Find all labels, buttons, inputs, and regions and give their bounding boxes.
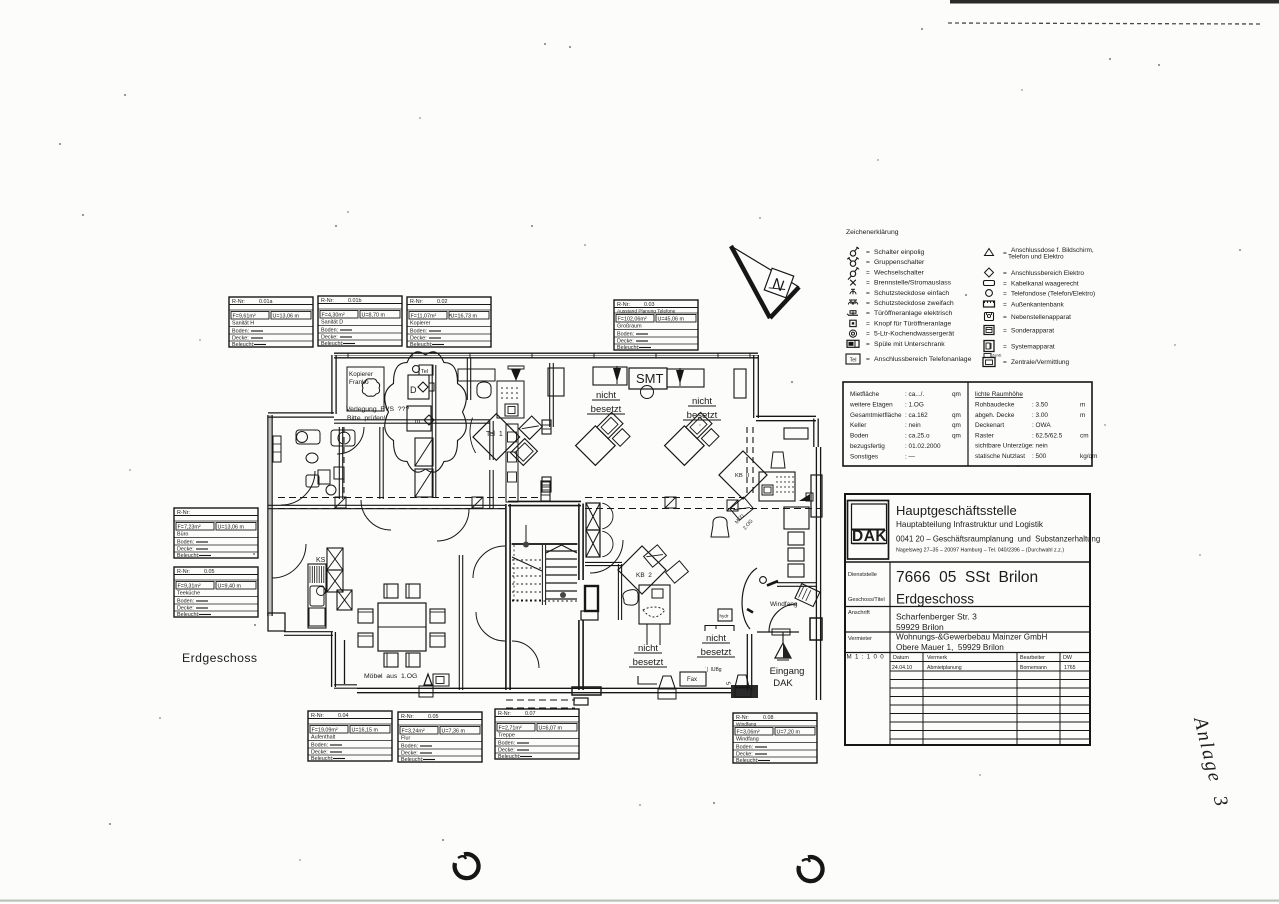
svg-text:Beleucht:: Beleucht: (410, 342, 432, 348)
svg-text:weitere Etagen: weitere Etagen (849, 401, 893, 408)
svg-text:Beleucht:: Beleucht: (617, 345, 639, 351)
svg-text:abgeh. Decke: abgeh. Decke (975, 412, 1015, 419)
svg-text:Keller: Keller (850, 422, 867, 429)
svg-text:besetzt: besetzt (701, 647, 732, 658)
svg-text:: 01.02.2000: : 01.02.2000 (905, 443, 941, 450)
svg-text:nicht: nicht (596, 390, 616, 401)
svg-text:qm: qm (952, 433, 961, 440)
svg-text:F=4,30m²: F=4,30m² (322, 313, 345, 319)
svg-text:F=11,07m²: F=11,07m² (411, 314, 437, 320)
svg-text:Datum: Datum (893, 655, 909, 661)
svg-text:bezugsfertig: bezugsfertig (850, 443, 885, 450)
svg-text:=: = (1003, 344, 1007, 351)
svg-text:Treppe: Treppe (498, 733, 515, 739)
svg-text:SMT: SMT (636, 371, 664, 386)
svg-text:Windfang: Windfang (736, 737, 759, 743)
svg-text:Vermieter: Vermieter (848, 636, 872, 642)
svg-text:Knopf für Türöffneranlage: Knopf für Türöffneranlage (874, 320, 951, 327)
svg-text:Wechselschalter: Wechselschalter (874, 269, 924, 276)
svg-text:Zentr.: Zentr. (992, 353, 1002, 358)
svg-text:: nein: : nein (1032, 443, 1048, 450)
svg-text:=: = (866, 290, 870, 297)
svg-text:F=19,09m²: F=19,09m² (312, 728, 338, 734)
svg-text:=: = (1003, 250, 1007, 257)
svg-text:Bitte prüfen!!: Bitte prüfen!! (347, 415, 388, 422)
svg-text:Bornemann: Bornemann (1020, 665, 1047, 671)
svg-text:nicht: nicht (706, 633, 726, 644)
svg-text:: 3.00: : 3.00 (1032, 412, 1048, 419)
svg-text:Obere Mauer 1, 59929 Brilon: Obere Mauer 1, 59929 Brilon (896, 643, 1004, 652)
svg-text:besetzt: besetzt (591, 404, 622, 415)
svg-text:Anschlussbereich Elektro: Anschlussbereich Elektro (1011, 270, 1084, 277)
svg-text:DAK: DAK (852, 528, 887, 545)
svg-text:Sanität D: Sanität D (321, 320, 343, 326)
svg-text:=: = (866, 249, 870, 256)
svg-text:=: = (1003, 270, 1007, 277)
svg-text:=: = (866, 320, 870, 327)
svg-text:Brennstelle/Stromauslass: Brennstelle/Stromauslass (874, 280, 952, 287)
svg-text:Deckenart: Deckenart (975, 422, 1004, 429)
svg-text:Wohnungs-&Gewerbebau Mainzer G: Wohnungs-&Gewerbebau Mainzer GmbH (896, 633, 1047, 642)
svg-text:U=45,06 m: U=45,06 m (658, 317, 685, 323)
svg-text:Aufenthalt: Aufenthalt (311, 735, 336, 741)
svg-text:Tel: Tel (849, 358, 856, 364)
svg-text:Türöffneranlage elektrisch: Türöffneranlage elektrisch (874, 310, 953, 317)
svg-text:Eingang: Eingang (770, 666, 805, 677)
svg-text:24.04.10: 24.04.10 (892, 665, 912, 671)
svg-text:0041 20 – Geschäftsraumplanung: 0041 20 – Geschäftsraumplanung und Subst… (896, 535, 1100, 544)
svg-text:F=9,61m²: F=9,61m² (233, 314, 256, 320)
svg-text:Hauptabteilung Infrastruktur u: Hauptabteilung Infrastruktur und Logisti… (896, 520, 1044, 529)
svg-text:KB 2: KB 2 (636, 572, 652, 579)
svg-text:=: = (1003, 302, 1007, 309)
svg-text:: 1.OG: : 1.OG (905, 401, 924, 408)
svg-text:: 3.50: : 3.50 (1032, 402, 1048, 409)
svg-text:m: m (1080, 412, 1085, 419)
svg-text:Beleucht:: Beleucht: (321, 341, 343, 347)
svg-text:=: = (866, 269, 870, 276)
svg-text:Möbel aus 1.OG: Möbel aus 1.OG (364, 673, 417, 680)
svg-text:DW: DW (1063, 655, 1073, 661)
svg-text:Kopierer: Kopierer (349, 371, 373, 378)
svg-text:Verlegung EVS ???: Verlegung EVS ??? (346, 406, 409, 413)
svg-text:: ca.162: : ca.162 (905, 412, 928, 419)
svg-text:=: = (866, 280, 870, 287)
svg-text:Kabelkanal waagerecht: Kabelkanal waagerecht (1011, 281, 1079, 288)
svg-text:qm: qm (952, 422, 961, 429)
svg-text:7666 05 SSt Brilon: 7666 05 SSt Brilon (896, 569, 1038, 586)
svg-text:lichte Raumhöhe: lichte Raumhöhe (975, 391, 1023, 398)
svg-text:=: = (866, 356, 870, 363)
svg-text:KS: KS (316, 557, 326, 564)
svg-text:E: E (413, 419, 420, 424)
svg-text:Dienststelle: Dienststelle (848, 572, 877, 578)
svg-text:Gesamtmietfläche: Gesamtmietfläche (850, 412, 902, 419)
svg-text:Beleucht:: Beleucht: (736, 758, 758, 764)
svg-text:Tel 1: Tel 1 (486, 431, 503, 438)
svg-text:Systemapparat: Systemapparat (1011, 344, 1055, 351)
svg-text:Schutzsteckdose zweifach: Schutzsteckdose zweifach (874, 300, 954, 307)
svg-text:U=16,73 m: U=16,73 m (451, 314, 478, 320)
svg-text:qm: qm (952, 412, 961, 419)
svg-text:M 1 : 1 0 0: M 1 : 1 0 0 (847, 654, 885, 661)
svg-text:Zeichenerklärung: Zeichenerklärung (846, 229, 899, 236)
svg-text:Büro: Büro (177, 532, 188, 538)
svg-text:Erdgeschoss: Erdgeschoss (182, 651, 258, 665)
svg-text:: OWA: : OWA (1032, 422, 1051, 429)
svg-text:Großraum: Großraum (617, 324, 642, 330)
svg-text:´| lUBg: ´| lUBg (705, 667, 722, 673)
svg-text:U=8,70 m: U=8,70 m (362, 313, 386, 319)
svg-text:U=6,07 m: U=6,07 m (539, 726, 563, 732)
svg-text:Beleucht:: Beleucht: (177, 612, 199, 618)
svg-text:Spüle mit Unterschrank: Spüle mit Unterschrank (874, 341, 945, 348)
svg-text:Boden: Boden (850, 433, 869, 440)
svg-text:U=13,06 m: U=13,06 m (218, 525, 245, 531)
svg-text:Rohbaudecke: Rohbaudecke (975, 402, 1015, 409)
svg-text:F=3,24m²: F=3,24m² (402, 729, 425, 735)
svg-text:Beleucht:: Beleucht: (401, 757, 423, 763)
svg-text:F=102,06m²: F=102,06m² (618, 317, 647, 323)
svg-text:sichtbare Unterzüge: sichtbare Unterzüge (975, 443, 1033, 450)
svg-text:U=9,40 m: U=9,40 m (218, 584, 242, 590)
svg-text:Zentrale/Vermittlung: Zentrale/Vermittlung (1011, 359, 1070, 366)
svg-text:: ca.25.o: : ca.25.o (905, 433, 930, 440)
svg-text:Beleucht:: Beleucht: (311, 756, 333, 762)
svg-text:F=3,06m²: F=3,06m² (737, 730, 760, 736)
svg-text:: 500: : 500 (1032, 453, 1047, 460)
svg-text:=: = (1003, 281, 1007, 288)
svg-text:=: = (866, 310, 870, 317)
svg-text:Sonderapparat: Sonderapparat (1011, 328, 1054, 335)
svg-text:U=13,06 m: U=13,06 m (273, 314, 300, 320)
svg-text:D: D (410, 385, 417, 395)
svg-text:cm: cm (1080, 432, 1089, 439)
svg-text:U=7,36 m: U=7,36 m (442, 729, 466, 735)
svg-text:Hauptgeschäftsstelle: Hauptgeschäftsstelle (896, 503, 1017, 518)
svg-text:hydr: hydr (720, 614, 729, 619)
svg-text:Telefon und Elektro: Telefon und Elektro (1008, 254, 1064, 261)
svg-text:: ca.../.: : ca.../. (905, 391, 924, 398)
svg-text:F=2,71m²: F=2,71m² (499, 726, 522, 732)
svg-text:=: = (1003, 291, 1007, 298)
svg-text:Erdgeschoss: Erdgeschoss (896, 592, 974, 607)
svg-text:Ausstand Planung Telefone: Ausstand Planung Telefone (617, 309, 676, 315)
svg-text:: —: : — (905, 453, 916, 460)
svg-text:=: = (866, 341, 870, 348)
svg-text:besetzt: besetzt (633, 657, 664, 668)
svg-text:Schalter einpolig: Schalter einpolig (874, 249, 924, 256)
svg-text:Gruppenschalter: Gruppenschalter (874, 259, 925, 266)
svg-text:F=9,31m²: F=9,31m² (178, 584, 201, 590)
svg-text:U=7,20 m: U=7,20 m (777, 730, 801, 736)
svg-text:=: = (1003, 314, 1007, 321)
svg-text:Sanität H: Sanität H (232, 321, 254, 327)
svg-text:Beleucht:: Beleucht: (177, 553, 199, 559)
svg-text:=: = (1003, 359, 1007, 366)
svg-text:kg/qm: kg/qm (1080, 453, 1097, 460)
svg-text:F=7,23m²: F=7,23m² (178, 525, 201, 531)
svg-text:=: = (866, 300, 870, 307)
svg-text:Anschrift: Anschrift (848, 610, 870, 616)
svg-text:=: = (1003, 328, 1007, 335)
svg-text:Geschoss/Titel: Geschoss/Titel (848, 597, 885, 603)
svg-text:statische Nutzlast: statische Nutzlast (975, 453, 1025, 460)
svg-text:Teeküche: Teeküche (177, 591, 200, 597)
svg-text:5-Ltr-Kochendwassergerät: 5-Ltr-Kochendwassergerät (874, 331, 954, 338)
svg-text:Außenkantenbank: Außenkantenbank (1011, 302, 1065, 309)
svg-text:nicht: nicht (692, 396, 712, 407)
svg-text:Beleucht:: Beleucht: (498, 754, 520, 760)
svg-text:U=16,15 m: U=16,15 m (352, 728, 379, 734)
svg-text:: 62.5/62.5: : 62.5/62.5 (1032, 432, 1063, 439)
svg-text:m: m (1080, 402, 1085, 409)
svg-text:Sonstiges: Sonstiges (850, 453, 878, 460)
svg-text:Anschlussbereich Telefonanlage: Anschlussbereich Telefonanlage (874, 356, 972, 363)
svg-text:=: = (866, 331, 870, 338)
svg-text:Tel: Tel (421, 369, 428, 375)
svg-text:Windfang: Windfang (736, 722, 757, 728)
svg-text:Flur: Flur (401, 736, 410, 742)
svg-text:Schutzsteckdose einfach: Schutzsteckdose einfach (874, 290, 949, 297)
svg-text:1765: 1765 (1064, 665, 1076, 671)
svg-text:Fax: Fax (687, 677, 697, 683)
svg-text:Raster: Raster (975, 432, 995, 439)
svg-text:Nebenstellenapparat: Nebenstellenapparat (1011, 314, 1071, 321)
svg-text:Kopierer: Kopierer (410, 321, 431, 327)
svg-text:Beleucht:: Beleucht: (232, 342, 254, 348)
svg-text:Telefondose (Telefon/Elektro): Telefondose (Telefon/Elektro) (1011, 291, 1095, 298)
svg-text:Mietfläche: Mietfläche (850, 391, 880, 398)
svg-text:qm: qm (952, 391, 961, 398)
svg-text:Vermerk: Vermerk (927, 655, 947, 661)
svg-text:59929 Brilon: 59929 Brilon (896, 622, 944, 632)
svg-text:Abmietplanung: Abmietplanung (927, 665, 962, 671)
svg-text:DAK: DAK (773, 678, 793, 689)
svg-text:nicht: nicht (638, 643, 658, 654)
svg-text:Bearbeiter: Bearbeiter (1020, 655, 1045, 661)
svg-text:: nein: : nein (905, 422, 921, 429)
svg-text:=: = (866, 259, 870, 266)
svg-text:Scharfenberger Str. 3: Scharfenberger Str. 3 (896, 612, 977, 622)
svg-text:Nagelsweg 27–35 – 20097 Hambur: Nagelsweg 27–35 – 20097 Hamburg – Tel. 0… (896, 548, 1064, 554)
